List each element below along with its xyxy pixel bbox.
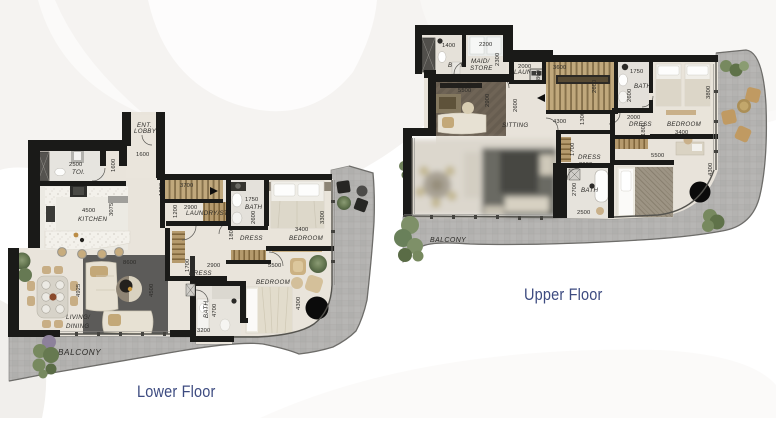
svg-text:2300: 2300 [495,53,501,66]
svg-text:3800: 3800 [706,86,712,99]
svg-text:3075: 3075 [109,203,115,216]
svg-text:2600: 2600 [251,211,257,224]
svg-text:1750: 1750 [245,197,258,203]
svg-text:8600: 8600 [123,260,136,266]
svg-text:Upper Floor: Upper Floor [524,286,603,304]
svg-text:1700: 1700 [570,143,576,156]
svg-text:BATH: BATH [581,187,598,194]
svg-text:DRESS: DRESS [578,154,601,161]
svg-text:TOI.: TOI. [72,169,85,176]
svg-text:1750: 1750 [630,69,643,75]
svg-text:Lower Floor: Lower Floor [137,383,216,401]
svg-text:2600: 2600 [513,99,519,112]
svg-text:SITTING: SITTING [502,122,529,129]
svg-text:4500: 4500 [82,208,95,214]
svg-text:4300: 4300 [296,297,302,310]
svg-text:1200: 1200 [173,205,179,218]
svg-text:BEDROOM: BEDROOM [289,235,324,242]
svg-text:2500: 2500 [577,210,590,216]
svg-text:1600: 1600 [111,159,117,172]
svg-text:BATH: BATH [245,204,262,211]
svg-text:1600: 1600 [136,152,149,158]
svg-text:1400: 1400 [442,43,455,49]
svg-text:BEDROOM: BEDROOM [256,279,291,286]
svg-text:800: 800 [536,70,542,80]
svg-text:2700: 2700 [572,183,578,196]
svg-text:DRESS: DRESS [240,235,263,242]
svg-text:BALCONY: BALCONY [430,237,467,244]
svg-text:4925: 4925 [76,284,82,297]
svg-text:MAID/: MAID/ [471,58,491,65]
svg-text:2200: 2200 [479,42,492,48]
svg-text:BEDROOM: BEDROOM [667,121,702,128]
svg-text:2600: 2600 [592,80,598,93]
svg-text:2900: 2900 [485,94,491,107]
svg-text:3400: 3400 [295,227,308,233]
svg-text:5500: 5500 [458,88,471,94]
svg-text:2900: 2900 [207,263,220,269]
svg-text:2600: 2600 [627,89,633,102]
svg-text:DINING: DINING [66,323,89,330]
svg-text:3700: 3700 [180,183,193,189]
svg-text:4700: 4700 [212,304,218,317]
svg-text:LIVING/: LIVING/ [66,314,91,321]
svg-text:BALCONY: BALCONY [58,348,101,357]
svg-text:3200: 3200 [197,328,210,334]
svg-text:3600: 3600 [553,65,566,71]
svg-text:BATH: BATH [203,301,210,318]
svg-text:4500: 4500 [149,284,155,297]
svg-text:3300: 3300 [320,211,326,224]
svg-text:STORE: STORE [470,65,493,72]
svg-text:2500: 2500 [69,162,82,168]
svg-text:KITCHEN: KITCHEN [78,216,107,223]
svg-text:LOBBY: LOBBY [134,128,157,135]
svg-text:BATH: BATH [634,83,651,90]
svg-text:1800: 1800 [641,123,647,136]
svg-text:5500: 5500 [651,153,664,159]
